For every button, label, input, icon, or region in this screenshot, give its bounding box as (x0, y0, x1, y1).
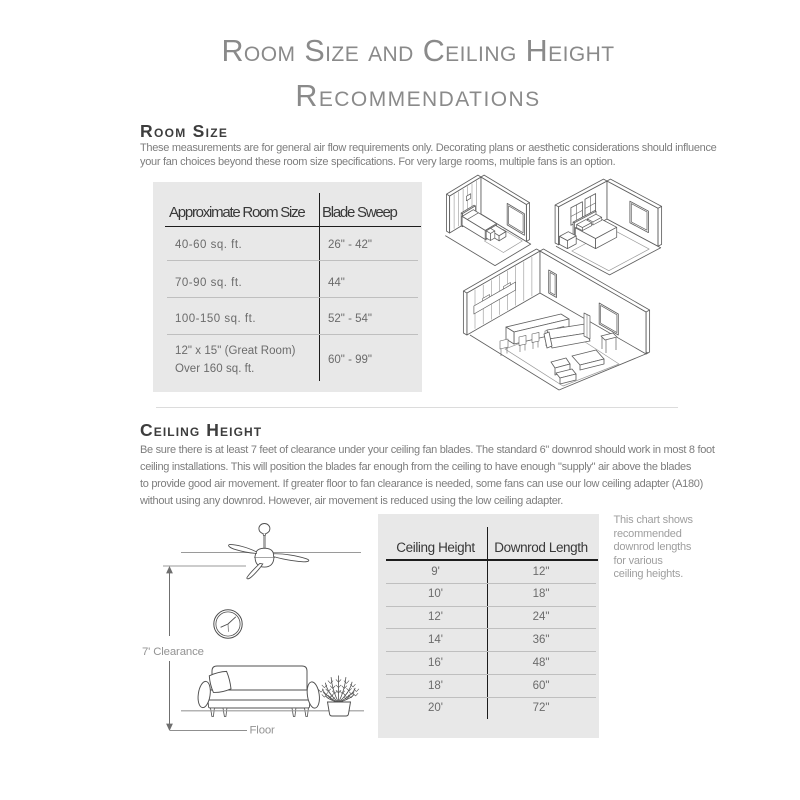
svg-text:Floor: Floor (250, 725, 276, 737)
svg-text:7' Clearance: 7' Clearance (142, 646, 204, 658)
